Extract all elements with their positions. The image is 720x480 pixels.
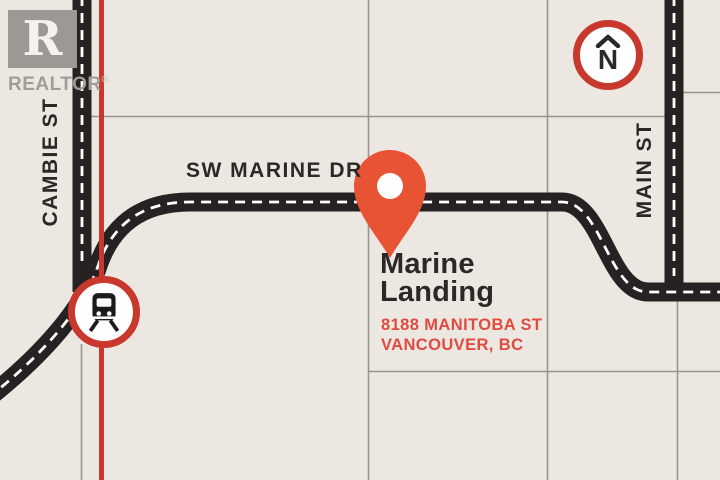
- realtor-wordmark: REALTOR®: [8, 74, 104, 96]
- street-label-cambie: CAMBIE ST: [39, 98, 63, 227]
- map-canvas: R REALTOR® N CAMBIE ST SW MARINE DR MAIN…: [0, 0, 720, 480]
- pin-hole: [377, 173, 403, 199]
- property-address-city: VANCOUVER, BC: [381, 335, 542, 355]
- registered-trademark-symbol: ®: [102, 75, 110, 86]
- train-glyph: [83, 291, 125, 333]
- realtor-logo-icon: R: [8, 10, 77, 68]
- north-label: N: [598, 47, 618, 73]
- street-label-main: MAIN ST: [633, 122, 657, 219]
- realtor-logo: R REALTOR®: [8, 10, 104, 96]
- property-address: 8188 MANITOBA ST VANCOUVER, BC: [381, 315, 542, 355]
- realtor-logo-letter: R: [23, 15, 63, 63]
- property-address-street: 8188 MANITOBA ST: [381, 315, 542, 335]
- location-pin-icon: [354, 150, 426, 258]
- property-name: Marine Landing: [380, 250, 494, 306]
- property-name-line1: Marine: [380, 250, 494, 278]
- property-name-line2: Landing: [380, 278, 494, 306]
- north-compass-icon: N: [573, 20, 643, 90]
- train-station-icon: [68, 276, 140, 348]
- street-label-sw-marine-dr: SW MARINE DR: [186, 159, 363, 183]
